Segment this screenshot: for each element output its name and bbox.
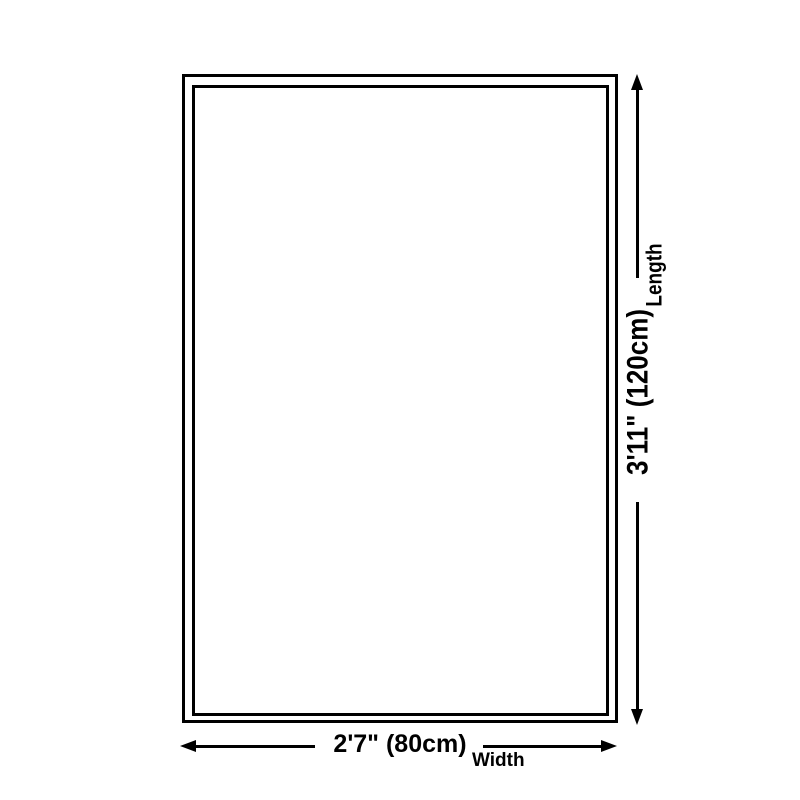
rug-outline-inner — [192, 85, 609, 716]
length-arrowhead-down-icon — [631, 709, 643, 725]
width-arrowhead-right-icon — [601, 740, 617, 752]
width-dimension-value: 2'7" (80cm) — [333, 732, 466, 757]
width-dimension-line-left — [194, 745, 315, 748]
width-axis-label: Width — [472, 751, 525, 770]
length-dimension-line-lower — [636, 502, 639, 710]
width-dimension-line-right — [483, 745, 602, 748]
length-axis-label: Length — [644, 243, 666, 306]
length-dimension-value: 3'11" (120cm) — [622, 309, 652, 475]
dimension-diagram: 3'11" (120cm) Length 2'7" (80cm) Width — [0, 0, 800, 800]
length-dimension-line-upper — [636, 88, 639, 278]
